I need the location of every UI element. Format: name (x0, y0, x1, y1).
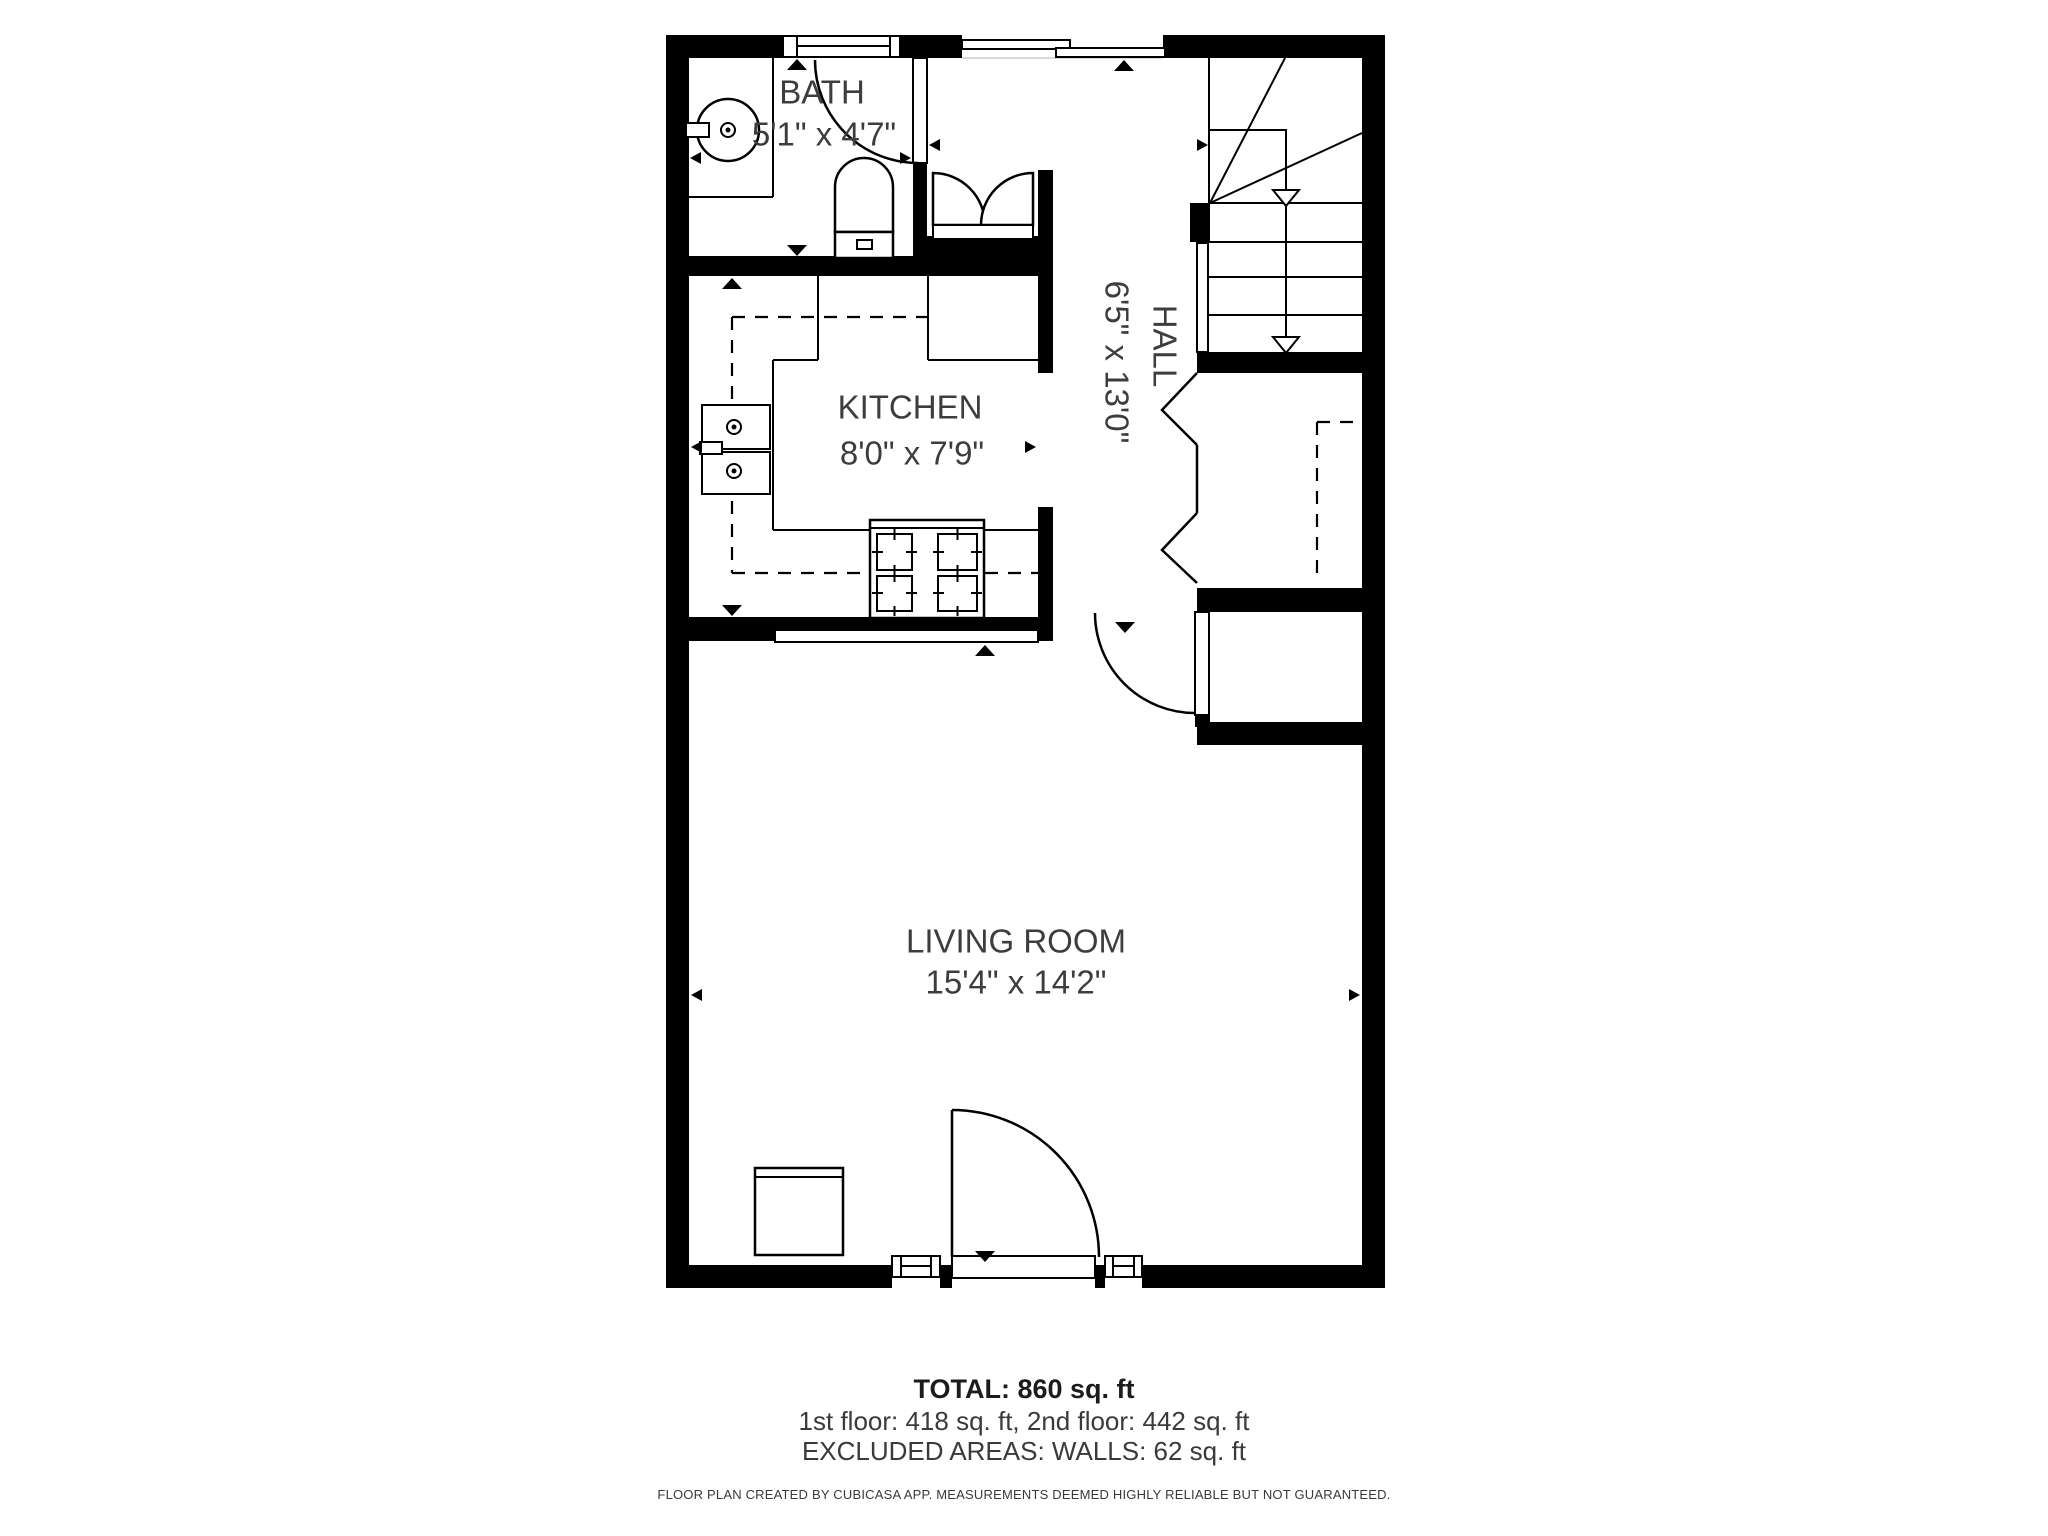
wall-kitchen-hall-upper (1038, 170, 1053, 373)
front-sidelight-left (892, 1256, 940, 1277)
total-area-text: TOTAL: 860 sq. ft (0, 1374, 2048, 1405)
kitchen-arrow-right-icon (1025, 441, 1036, 453)
living-room-label: LIVING ROOM (906, 923, 1126, 960)
bath-window (783, 36, 900, 57)
closet-door-left-icon (933, 173, 985, 225)
toilet-icon (835, 158, 893, 258)
wall-top-mid (900, 35, 962, 58)
wall-stair-block (1190, 203, 1210, 242)
kitchen-arrow-up-icon (722, 278, 742, 289)
living-arrow-left-icon (691, 989, 702, 1001)
bath-arrow-down-icon (787, 245, 807, 256)
wall-right (1362, 35, 1385, 1288)
bifold-door-icon-2 (1162, 513, 1197, 583)
hall-arrow-up-icon (1114, 60, 1134, 71)
entry-closet-door (1095, 612, 1209, 715)
pass-through-strip (775, 630, 1038, 642)
disclaimer-text: FLOOR PLAN CREATED BY CUBICASA APP. MEAS… (0, 1487, 2048, 1502)
hall-dims: 6'5" x 13'0" (1099, 281, 1136, 444)
bath-label: BATH (779, 74, 865, 111)
wall-bottom-c (1095, 1265, 1105, 1288)
bath-door-leaf (913, 58, 927, 163)
closet-door-right-icon (981, 173, 1033, 225)
wall-left (666, 35, 689, 1288)
living-room-dims: 15'4" x 14'2" (926, 964, 1107, 1001)
wall-bottom-d (1142, 1265, 1385, 1288)
bath-faucet-icon (686, 123, 709, 137)
hall-arrow-down-icon (1115, 622, 1135, 633)
kitchen-arrow-down-icon (722, 605, 742, 616)
hall-closet-double-doors (933, 173, 1033, 239)
front-door-arc (952, 1110, 1099, 1257)
kitchen-sink-icon (700, 405, 770, 494)
wall-stairwell-bottom (1197, 352, 1385, 373)
entry-closet-door-arc (1095, 613, 1195, 713)
stair-stringer (1197, 243, 1208, 352)
bath-dims: 5'1" x 4'7" (752, 116, 896, 153)
wall-kitchen-hall-lower (1038, 507, 1053, 632)
wall-bottom-a (666, 1265, 892, 1288)
wall-closet1-closet2 (1197, 588, 1362, 612)
floor-areas-text: 1st floor: 418 sq. ft, 2nd floor: 442 sq… (0, 1406, 2048, 1437)
front-door (952, 1110, 1099, 1278)
kitchen-faucet-icon (700, 442, 722, 454)
closet-shelf (933, 225, 1033, 239)
kitchen-label: KITCHEN (838, 389, 983, 426)
kitchen-dims: 8'0" x 7'9" (840, 435, 984, 472)
stair-down-arrow-2 (1273, 337, 1299, 353)
hall-arrow-left-icon (929, 139, 940, 151)
understair-closet (1162, 373, 1362, 583)
excluded-areas-text: EXCLUDED AREAS: WALLS: 62 sq. ft (0, 1436, 2048, 1467)
wall-bath-hall (913, 163, 927, 258)
front-sidelight-right (1105, 1256, 1142, 1277)
entry-closet-door-leaf (1195, 612, 1209, 715)
stove-icon (870, 520, 984, 618)
appliance-icon (755, 1168, 843, 1255)
hall-label: HALL (1147, 305, 1184, 388)
living-arrow-up-icon (975, 645, 995, 656)
wall-closet2-bottom2 (1197, 722, 1362, 745)
bath-arrow-up-icon (787, 59, 807, 70)
hall-window (962, 40, 1165, 58)
front-door-threshold (952, 1256, 1095, 1278)
hall-arrow-right-icon (1197, 139, 1208, 151)
wall-top-right (1163, 35, 1385, 58)
wall-bottom-b (940, 1265, 952, 1288)
living-arrow-right-icon (1349, 989, 1360, 1001)
stairs-icon (1197, 58, 1362, 353)
bath-arrow-left-icon (690, 152, 701, 164)
floor-plan: BATH 5'1" x 4'7" KITCHEN 8'0" x 7'9" HAL… (0, 0, 2048, 1536)
kitchen-arrow-left-icon (691, 441, 702, 453)
